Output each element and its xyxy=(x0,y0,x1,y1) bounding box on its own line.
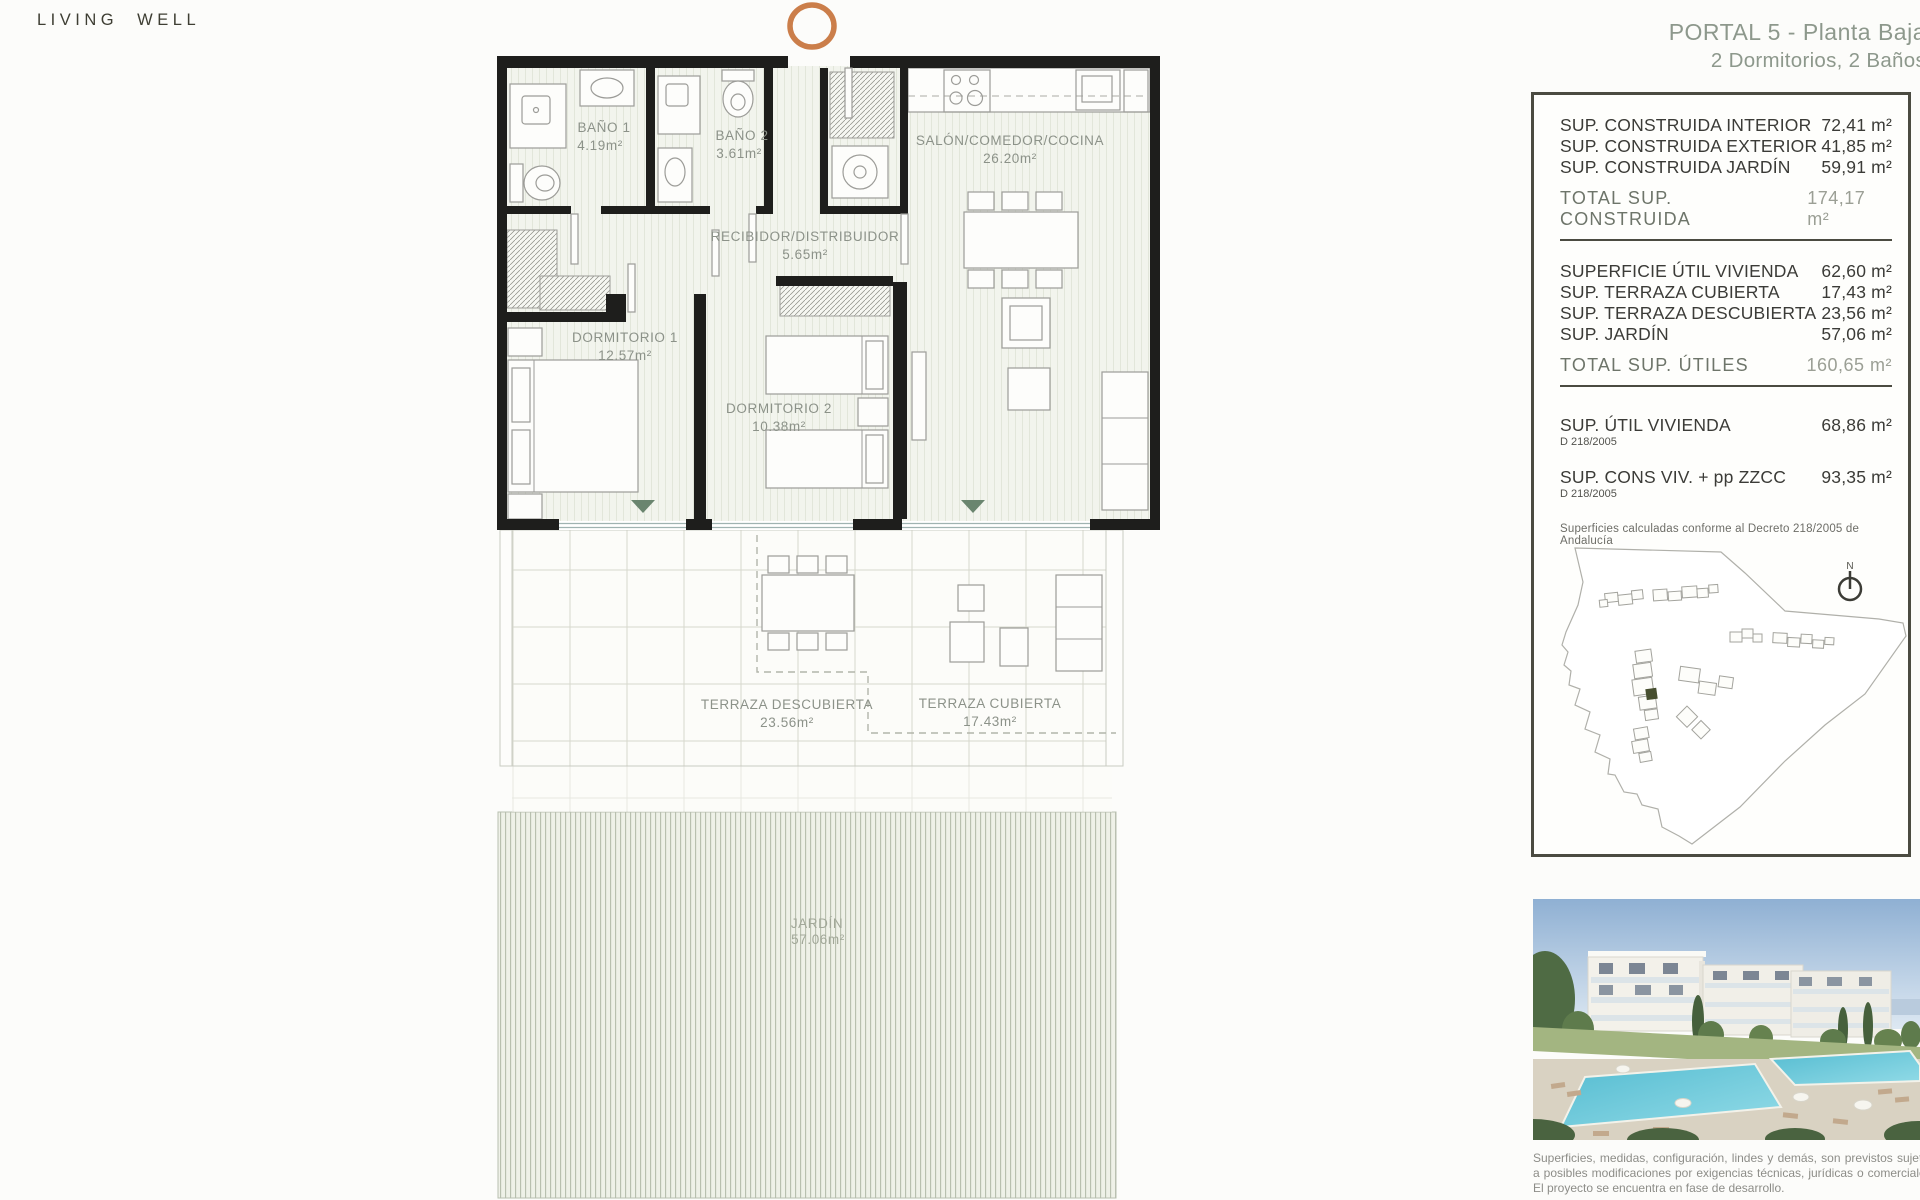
svg-text:N: N xyxy=(1846,561,1853,572)
utility-shaft xyxy=(830,72,894,198)
room-area-dormitorio2: 10.38m² xyxy=(752,419,806,434)
surface-label: SUP. ÚTIL VIVIENDA xyxy=(1560,415,1731,436)
room-area-salon: 26.20m² xyxy=(983,151,1037,166)
surface-value: 68,86 m² xyxy=(1821,415,1892,436)
surface-value: 93,35 m² xyxy=(1821,467,1892,488)
surface-row: SUP. CONSTRUIDA INTERIOR 72,41 m² xyxy=(1560,115,1892,136)
surface-label: SUP. TERRAZA CUBIERTA xyxy=(1560,282,1780,303)
outdoor-dining-table xyxy=(762,556,854,650)
surface-label: SUP. CONSTRUIDA INTERIOR xyxy=(1560,115,1811,136)
surface-value: 17,43 m² xyxy=(1821,282,1892,303)
surfaces-panel: SUP. CONSTRUIDA INTERIOR 72,41 m² SUP. C… xyxy=(1531,92,1911,857)
surface-value: 23,56 m² xyxy=(1821,303,1892,324)
legal-disclaimer: Superficies, medidas, configuración, lin… xyxy=(1533,1151,1920,1196)
surface-value: 41,85 m² xyxy=(1821,136,1892,157)
room-label-salon: SALÓN/COMEDOR/COCINA xyxy=(916,133,1104,148)
surface-value: 57,06 m² xyxy=(1821,324,1892,345)
room-area-recibidor: 5.65m² xyxy=(782,247,828,262)
highlighted-unit xyxy=(1645,688,1657,700)
decreto-row: SUP. CONS VIV. + pp ZZCC 93,35 m² xyxy=(1560,467,1892,488)
room-label-bano1: BAÑO 1 xyxy=(577,120,630,135)
total-label: TOTAL SUP. ÚTILES xyxy=(1560,355,1749,376)
total-value: 160,65 m² xyxy=(1806,355,1892,376)
surface-value: 72,41 m² xyxy=(1821,115,1892,136)
project-photo xyxy=(1533,899,1920,1140)
panel-divider xyxy=(1560,239,1892,241)
room-area-dormitorio1: 12.57m² xyxy=(598,348,652,363)
surface-value: 62,60 m² xyxy=(1821,261,1892,282)
total-label: TOTAL SUP. CONSTRUIDA xyxy=(1560,188,1807,230)
room-label-terraza-cubierta: TERRAZA CUBIERTA xyxy=(919,696,1062,711)
total-construida-row: TOTAL SUP. CONSTRUIDA 174,17 m² xyxy=(1560,188,1892,230)
surface-label: SUPERFICIE ÚTIL VIVIENDA xyxy=(1560,261,1799,282)
decreto-row: SUP. ÚTIL VIVIENDA 68,86 m² xyxy=(1560,415,1892,436)
total-utiles-row: TOTAL SUP. ÚTILES 160,65 m² xyxy=(1560,355,1892,376)
window-bedroom1 xyxy=(559,521,686,530)
room-label-dormitorio1: DORMITORIO 1 xyxy=(572,330,678,345)
surface-row: SUP. TERRAZA CUBIERTA 17,43 m² xyxy=(1560,282,1892,303)
entrance-marker-icon xyxy=(790,5,834,47)
dining-table xyxy=(964,192,1078,288)
room-area-bano1: 4.19m² xyxy=(577,138,623,153)
surface-label: SUP. TERRAZA DESCUBIERTA xyxy=(1560,303,1816,324)
window-bedroom2 xyxy=(712,521,853,530)
surface-value: 59,91 m² xyxy=(1821,157,1892,178)
room-label-jardin: JARDÍN xyxy=(791,916,843,931)
panel-divider xyxy=(1560,385,1892,387)
site-plan-map: N xyxy=(1540,541,1908,855)
total-value: 174,17 m² xyxy=(1807,188,1892,230)
room-label-terraza-descubierta: TERRAZA DESCUBIERTA xyxy=(701,697,873,712)
room-area-terraza-cubierta: 17.43m² xyxy=(963,714,1017,729)
north-arrow-icon: N xyxy=(1839,561,1861,600)
room-label-recibidor: RECIBIDOR/DISTRIBUIDOR xyxy=(711,229,900,244)
kitchen-counter xyxy=(908,68,1150,112)
room-label-bano2: BAÑO 2 xyxy=(715,128,768,143)
garden-area xyxy=(498,812,1116,1198)
surface-label: SUP. CONS VIV. + pp ZZCC xyxy=(1560,467,1786,488)
surface-row: SUPERFICIE ÚTIL VIVIENDA 62,60 m² xyxy=(1560,261,1892,282)
surface-row: SUP. CONSTRUIDA EXTERIOR 41,85 m² xyxy=(1560,136,1892,157)
surface-row: SUP. TERRAZA DESCUBIERTA 23,56 m² xyxy=(1560,303,1892,324)
window-living-room xyxy=(902,521,1090,530)
room-area-bano2: 3.61m² xyxy=(716,146,762,161)
surface-label: SUP. JARDÍN xyxy=(1560,324,1669,345)
surface-label: SUP. CONSTRUIDA EXTERIOR xyxy=(1560,136,1817,157)
room-area-terraza-descubierta: 23.56m² xyxy=(760,715,814,730)
window-strips xyxy=(559,521,1090,530)
bedroom2-furniture xyxy=(766,284,890,488)
room-label-dormitorio2: DORMITORIO 2 xyxy=(726,401,832,416)
surface-row: SUP. CONSTRUIDA JARDÍN 59,91 m² xyxy=(1560,157,1892,178)
decreto-sub: D 218/2005 xyxy=(1560,436,1892,449)
surface-row: SUP. JARDÍN 57,06 m² xyxy=(1560,324,1892,345)
terrace-area xyxy=(500,530,1123,812)
decreto-sub: D 218/2005 xyxy=(1560,488,1892,501)
room-area-jardin: 57.06m² xyxy=(791,932,845,947)
surface-label: SUP. CONSTRUIDA JARDÍN xyxy=(1560,157,1791,178)
